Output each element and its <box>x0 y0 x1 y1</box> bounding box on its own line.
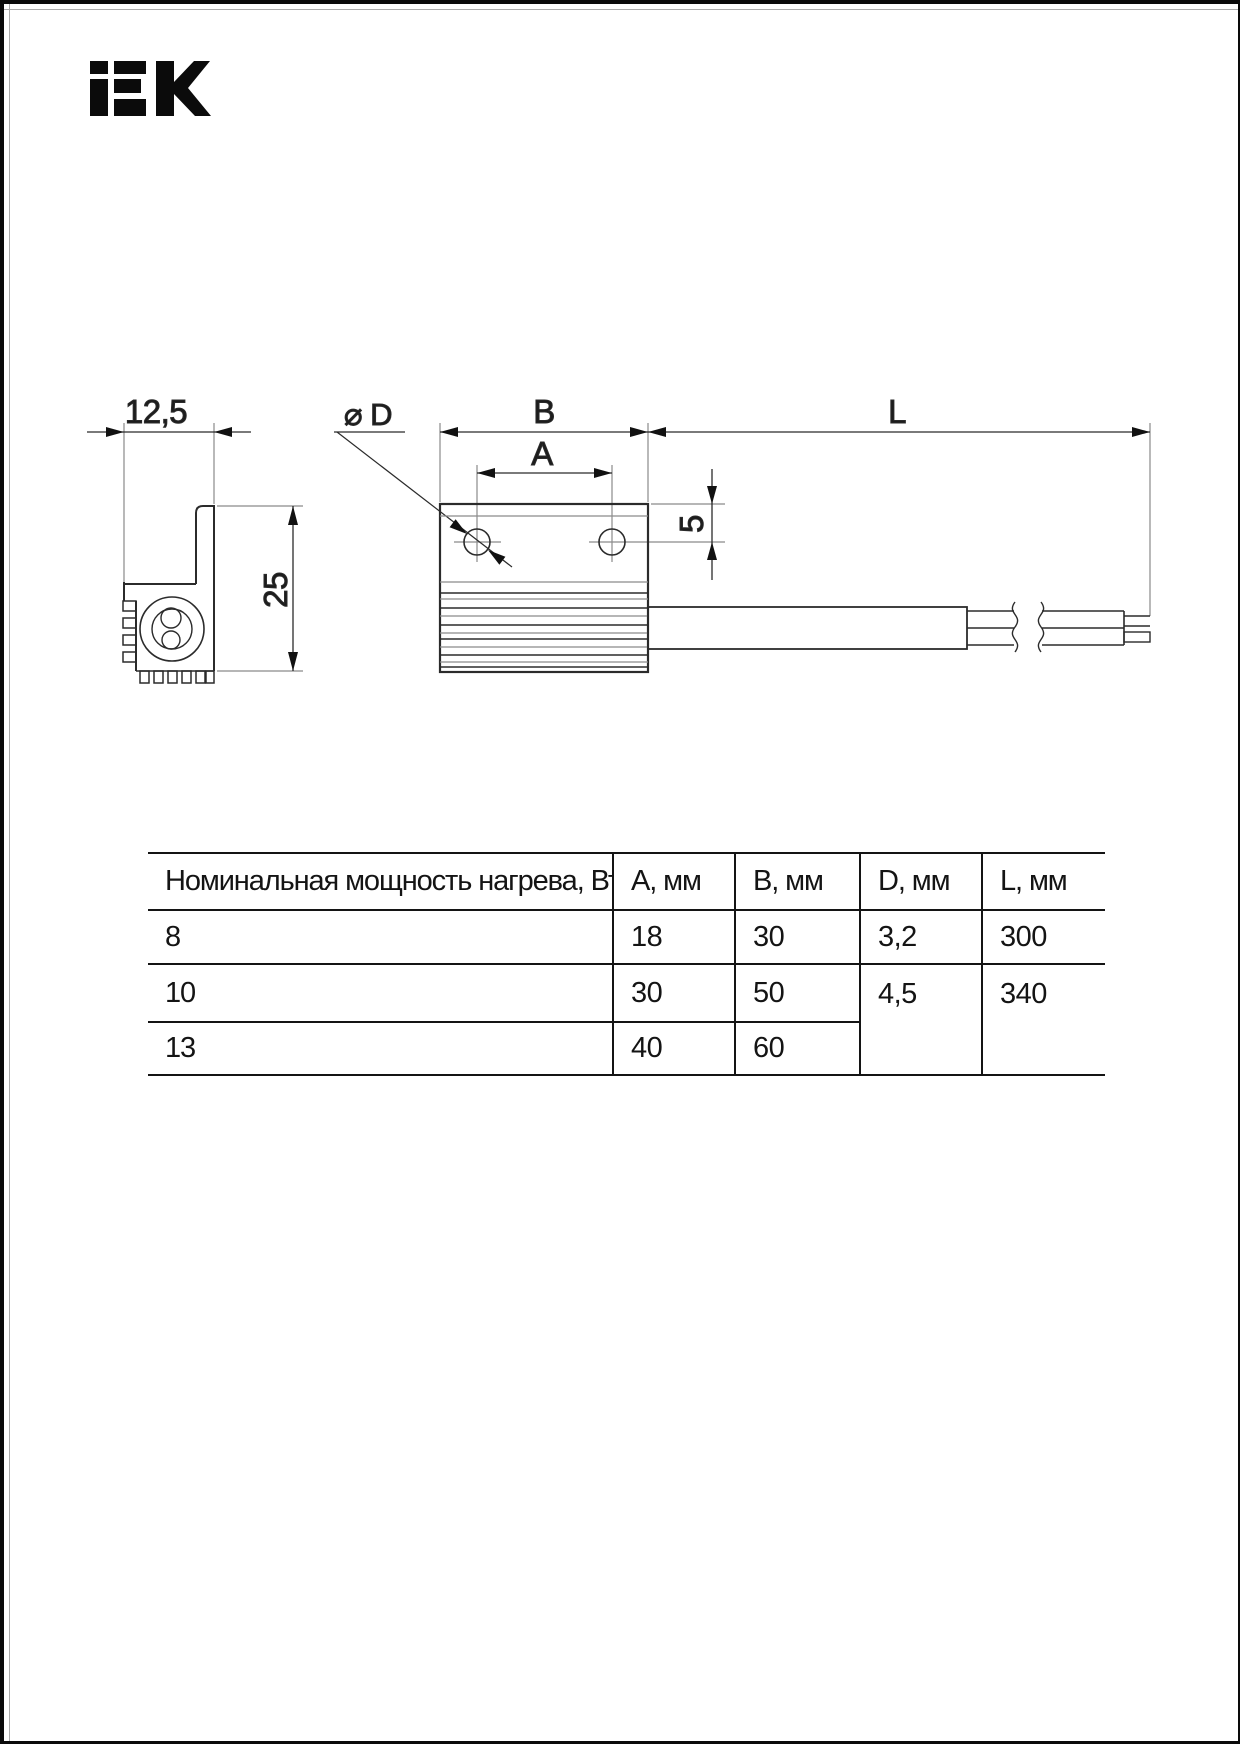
top-view: B A L ⌀ D 5 <box>334 393 1150 672</box>
cell-a: 18 <box>613 910 735 964</box>
cell-a: 30 <box>613 964 735 1022</box>
cell-b: 30 <box>735 910 860 964</box>
column-header-l: L, мм <box>982 853 1105 910</box>
heater-profile <box>123 506 214 683</box>
column-header-a: A, мм <box>613 853 735 910</box>
length-dimension-label: L <box>888 393 906 430</box>
cell-d-merged: 4,5 <box>860 964 982 1075</box>
cell-d: 3,2 <box>860 910 982 964</box>
datasheet-page: 12,5 25 <box>0 0 1240 1744</box>
iek-logo <box>90 61 211 116</box>
cell-power: 8 <box>148 910 613 964</box>
dimensions-table-wrap: Номинальная мощность нагрева, Вт A, мм B… <box>148 852 1105 1076</box>
cell-l-merged: 340 <box>982 964 1105 1075</box>
cell-b: 60 <box>735 1022 860 1075</box>
fin-lines <box>440 582 648 667</box>
table-row: 8 18 30 3,2 300 <box>148 910 1105 964</box>
width-dimension-label: B <box>533 393 555 430</box>
depth-dimension-label: 12,5 <box>125 393 187 430</box>
dimensions-table: Номинальная мощность нагрева, Вт A, мм B… <box>148 852 1105 1076</box>
column-header-b: B, мм <box>735 853 860 910</box>
cell-a: 40 <box>613 1022 735 1075</box>
height-dimension-label: 25 <box>257 572 294 608</box>
hole-offset-dimension-label: 5 <box>673 515 710 533</box>
table-header-row: Номинальная мощность нагрева, Вт A, мм B… <box>148 853 1105 910</box>
diameter-dimension-label: ⌀ D <box>344 397 392 432</box>
cell-b: 50 <box>735 964 860 1022</box>
cell-power: 10 <box>148 964 613 1022</box>
cell-l: 300 <box>982 910 1105 964</box>
diameter-callout <box>334 432 512 567</box>
wire-ends <box>1124 616 1150 642</box>
mounting-bracket <box>440 504 648 672</box>
side-view: 12,5 25 <box>87 393 303 683</box>
table-row: 10 30 50 4,5 340 <box>148 964 1105 1022</box>
cell-power: 13 <box>148 1022 613 1075</box>
hole-spacing-dimension-label: A <box>531 435 553 472</box>
cable <box>648 602 1150 652</box>
column-header-d: D, мм <box>860 853 982 910</box>
column-header-power: Номинальная мощность нагрева, Вт <box>148 853 613 910</box>
